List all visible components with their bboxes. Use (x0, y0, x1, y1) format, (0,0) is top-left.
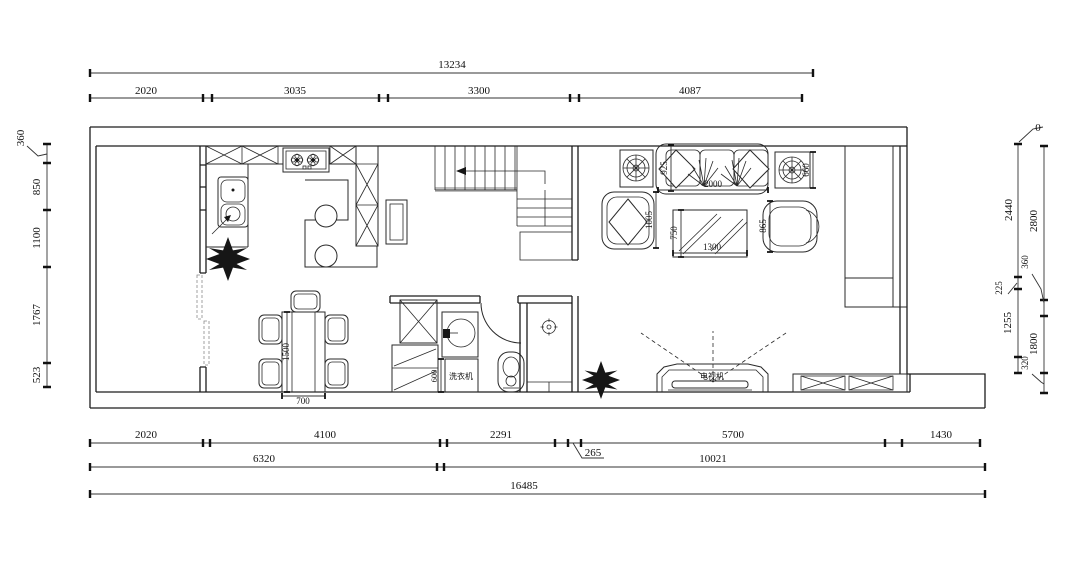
dim-label: 0 (1035, 122, 1041, 134)
storage-cabinet (793, 374, 907, 392)
dim-label: 1430 (930, 429, 953, 441)
dining-chair (259, 315, 282, 344)
dim-label: 4100 (314, 429, 337, 441)
tv-icon (672, 381, 748, 388)
dim-label: 850 (31, 178, 43, 195)
dining-area (259, 291, 348, 392)
dining-chair (325, 315, 348, 344)
dim-label: 5700 (722, 429, 745, 441)
dining-chair (291, 291, 320, 312)
plant-icon (582, 361, 620, 399)
stool-icon (315, 245, 337, 267)
dim-label: 10021 (699, 453, 727, 465)
dimensions-bottom: 2020 4100 2291 265 5700 1430 6320 10021 … (90, 429, 985, 498)
dim-label: 660 (801, 163, 811, 177)
dim-label: 2291 (490, 429, 512, 441)
dim-label: 265 (585, 447, 602, 459)
tv-area: 电视机 (641, 331, 907, 392)
shoe-cabinet (392, 345, 438, 392)
tv-label: 电视机 (700, 371, 724, 381)
dim-label: 865 (758, 219, 768, 233)
dim-label: 1100 (31, 227, 43, 249)
dim-label: 750 (669, 226, 679, 240)
dim-label: 925 (659, 161, 669, 175)
dim-label: 1500 (281, 343, 291, 362)
floor-plan-drawing: 电视机 洗衣机 (0, 0, 1074, 576)
dim-label: 3035 (284, 85, 307, 97)
tall-cabinet (356, 146, 378, 246)
bathroom: 洗衣机 (392, 300, 620, 399)
stair-direction-arrow (464, 171, 545, 184)
dim-label: 6320 (253, 453, 276, 465)
washing-machine: 洗衣机 (445, 359, 478, 392)
dim-label: 700 (296, 396, 310, 406)
plant-icon (206, 237, 250, 281)
dim-label: 16485 (510, 480, 538, 492)
dining-chair (259, 359, 282, 388)
stool-icon (315, 205, 337, 227)
dim-label: 13234 (438, 59, 466, 71)
dim-label: 2020 (135, 85, 158, 97)
dim-label: 523 (31, 366, 43, 383)
washing-machine-label: 洗衣机 (449, 371, 473, 381)
dim-label: 1005 (644, 211, 654, 230)
dim-label: 225 (994, 281, 1004, 295)
dim-label: 2000 (704, 179, 723, 189)
dim-label: 360 (1020, 255, 1030, 269)
side-table-left (620, 150, 653, 187)
dim-label: 1800 (1028, 333, 1040, 356)
dim-label: 320 (1020, 356, 1030, 370)
dim-label: 360 (15, 129, 27, 146)
kitchen-door (386, 200, 407, 244)
dim-label: 3300 (468, 85, 491, 97)
floor-plan-page: 电视机 洗衣机 (0, 0, 1074, 576)
floor-drain-icon (543, 321, 556, 334)
dimensions-top: 13234 2020 3035 3300 4087 (90, 59, 813, 102)
dim-label: 2800 (1028, 210, 1040, 233)
washbasin-icon (442, 312, 478, 357)
stairs (435, 146, 572, 260)
cooktop-icon (283, 148, 329, 172)
dimensions-right: 0 2440 225 1255 2800 360 1800 320 (994, 122, 1048, 393)
kitchen (206, 146, 407, 281)
dimensions-left: 360 850 1100 1767 523 (15, 129, 51, 387)
dim-label: 1767 (31, 304, 43, 327)
armchair-right (763, 201, 819, 252)
dim-label: 4087 (679, 85, 702, 97)
dim-label: 2440 (1003, 199, 1015, 222)
dim-label: 1255 (1002, 312, 1014, 335)
dim-label: 600 (429, 370, 439, 383)
dim-label: 2020 (135, 429, 158, 441)
living-room (602, 144, 819, 257)
kitchen-sink-icon (212, 177, 248, 234)
shower-room (520, 303, 572, 392)
dim-label: 1300 (703, 242, 722, 252)
bath-cabinet (400, 300, 437, 343)
dining-chair (325, 359, 348, 388)
